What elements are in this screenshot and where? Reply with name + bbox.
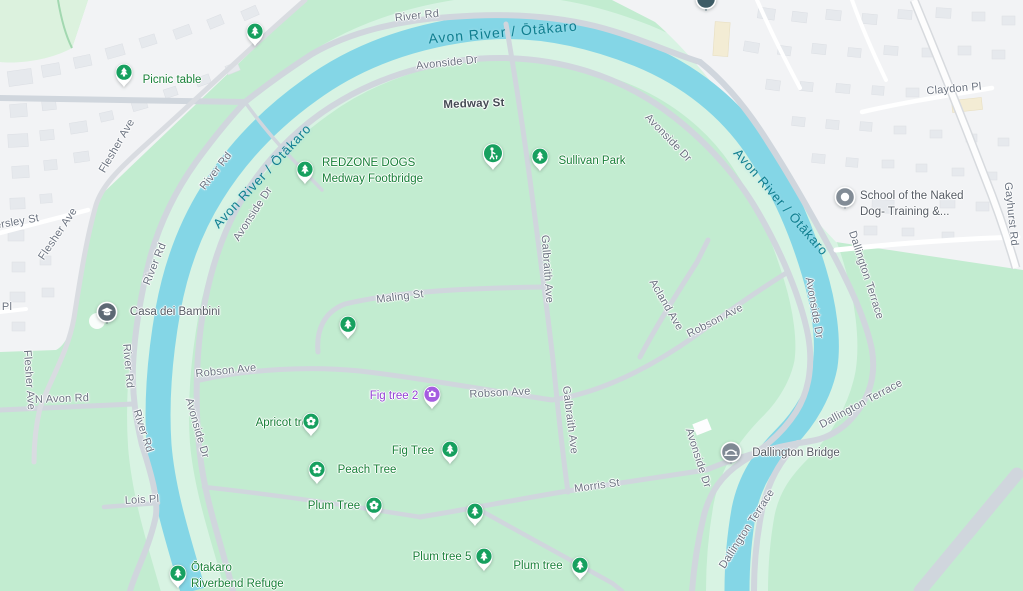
tree-icon — [473, 545, 495, 572]
poi-label-plum-tree-small[interactable]: Plum tree — [513, 560, 562, 572]
poi-label-picnic-table[interactable]: Picnic table — [143, 74, 202, 86]
business-marker[interactable] — [834, 186, 856, 217]
poi-label-fig-tree-2[interactable]: Fig tree 2 — [370, 390, 419, 402]
tree-pin-marker[interactable] — [569, 554, 591, 586]
tree-icon — [294, 158, 316, 185]
tree-icon — [464, 500, 486, 527]
dog-walk-icon — [480, 140, 506, 171]
poi-label-otakaro-refuge[interactable]: Ōtakaro Riverbend Refuge — [191, 560, 284, 591]
tree-pin-marker[interactable] — [294, 158, 316, 190]
bridge-icon — [720, 441, 742, 467]
road-label-medway-st: Medway St — [443, 97, 505, 111]
tree-pin-marker[interactable] — [244, 20, 266, 52]
poi-label-plum-tree[interactable]: Plum Tree — [308, 500, 360, 512]
school-line1: School of the Naked — [860, 188, 964, 204]
school-line2: Dog- Training &... — [860, 204, 964, 220]
dot-icon — [834, 186, 856, 212]
tree-pin-marker[interactable] — [529, 145, 551, 177]
poi-label-plum-tree-5[interactable]: Plum tree 5 — [413, 551, 472, 563]
flower-icon — [363, 494, 385, 521]
redzone-line1: REDZONE DOGS — [322, 155, 423, 171]
tree-icon — [529, 145, 551, 172]
tree-pin-marker[interactable] — [464, 500, 486, 532]
graduation-cap-icon — [96, 301, 118, 327]
road-label-n-avon-rd: N Avon Rd — [35, 392, 90, 406]
flower-pin-marker[interactable] — [306, 458, 328, 490]
poi-label-peach-tree[interactable]: Peach Tree — [338, 464, 397, 476]
poi-label-fig-tree[interactable]: Fig Tree — [392, 445, 434, 457]
road-label-lois-pl: Lois Pl — [124, 493, 159, 507]
bridge-marker[interactable] — [720, 441, 742, 472]
poi-label-casa-dei-bambini[interactable]: Casa dei Bambini — [130, 306, 220, 318]
tree-icon — [337, 313, 359, 340]
pin-icon — [695, 0, 717, 14]
poi-label-school-naked-dog[interactable]: School of the Naked Dog- Training &... — [860, 188, 964, 220]
tree-icon — [244, 20, 266, 47]
flower-icon — [300, 410, 322, 437]
map-canvas[interactable]: River Rd River Rd River Rd River Rd Rive… — [0, 0, 1023, 591]
refuge-line2: Riverbend Refuge — [191, 576, 284, 591]
redzone-line2: Medway Footbridge — [322, 171, 423, 187]
road-label-pl: Pl — [2, 301, 12, 313]
tree-pin-marker[interactable] — [113, 61, 135, 93]
photo-pin-marker[interactable] — [421, 383, 443, 415]
tree-pin-marker[interactable] — [167, 562, 189, 591]
tree-icon — [439, 438, 461, 465]
camera-icon — [421, 383, 443, 410]
refuge-line1: Ōtakaro — [191, 560, 284, 576]
flower-pin-marker[interactable] — [363, 494, 385, 526]
tree-pin-marker[interactable] — [337, 313, 359, 345]
flower-pin-marker[interactable] — [300, 410, 322, 442]
poi-label-sullivan-park[interactable]: Sullivan Park — [558, 155, 625, 167]
poi-label-dallington-bridge[interactable]: Dallington Bridge — [752, 447, 840, 459]
tree-icon — [167, 562, 189, 589]
tree-pin-marker[interactable] — [473, 545, 495, 577]
school-marker[interactable] — [96, 301, 118, 332]
tree-icon — [569, 554, 591, 581]
poi-label-redzone-dogs[interactable]: REDZONE DOGS Medway Footbridge — [322, 155, 423, 187]
flower-icon — [306, 458, 328, 485]
clipped-pin-marker[interactable] — [695, 0, 717, 19]
tree-pin-marker[interactable] — [439, 438, 461, 470]
dog-park-marker[interactable] — [480, 140, 506, 176]
tree-icon — [113, 61, 135, 88]
